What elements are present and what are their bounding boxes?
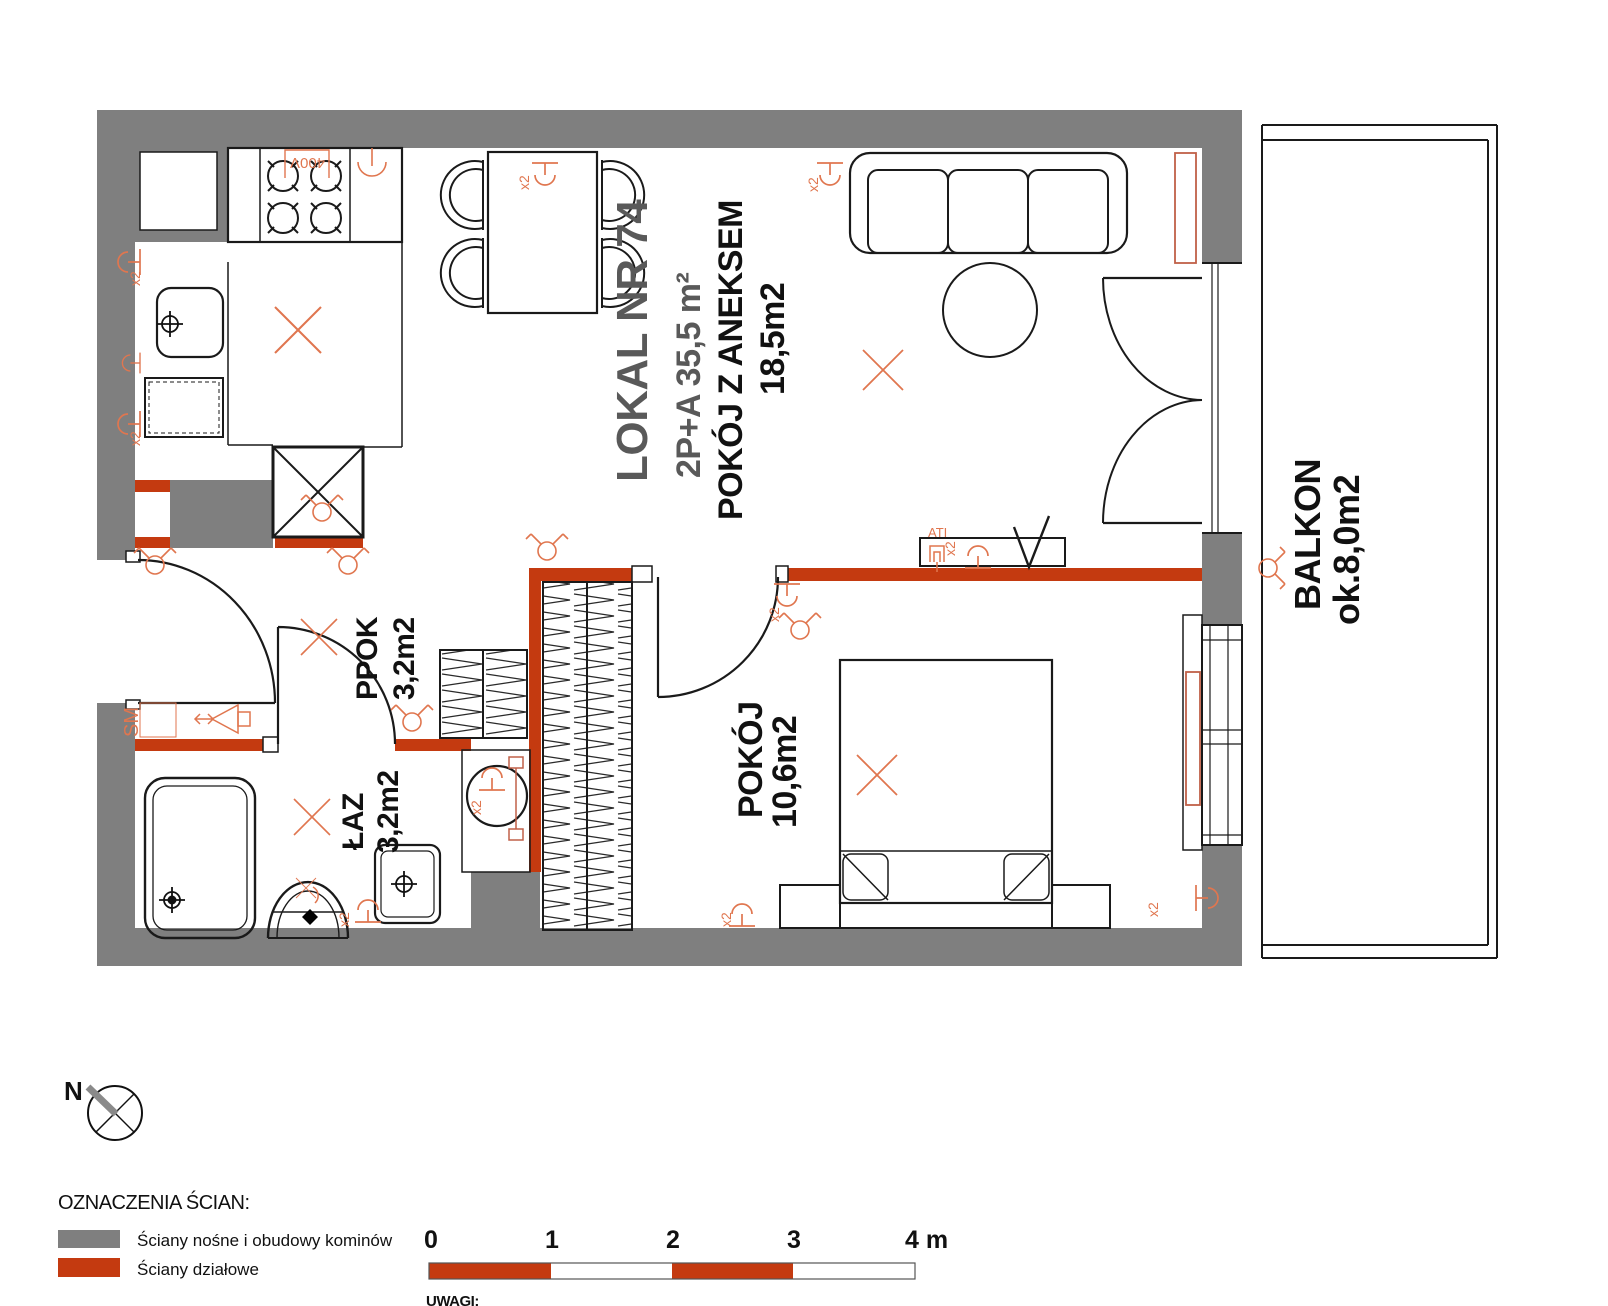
socket-x2-label: x2	[943, 541, 957, 556]
room-label-bath: ŁAZ	[339, 793, 369, 850]
unit-type-area: 2P+A 35,5 m²	[672, 273, 706, 478]
socket-x2-label: x2	[517, 175, 531, 190]
bathtub	[145, 778, 255, 938]
legend-swatch-partition	[58, 1258, 120, 1277]
extractor-symbol	[358, 148, 386, 176]
kitchen-sink	[157, 288, 223, 357]
north-compass	[88, 1086, 142, 1140]
balcony-door	[1103, 263, 1242, 533]
load-bearing-walls	[97, 110, 1242, 966]
intercom-label: SM	[122, 707, 142, 737]
legend-heading: OZNACZENIA ŚCIAN:	[58, 1193, 250, 1213]
legend-swatch-load-bearing	[58, 1230, 120, 1248]
notes-heading: UWAGI:	[426, 1294, 479, 1306]
bedroom-window	[1202, 625, 1242, 845]
dining-table	[488, 152, 597, 313]
coffee-table	[943, 263, 1037, 357]
socket-x2-label: x2	[1146, 902, 1160, 917]
socket-x2-label: x2	[719, 912, 733, 927]
living-radiator	[1175, 153, 1196, 263]
sink-tap-icon	[157, 311, 183, 337]
bedroom-door	[658, 577, 778, 697]
socket-x2-label: x2	[128, 431, 142, 446]
entry-door	[138, 560, 275, 703]
legend-label-load-bearing: Ściany nośne i obudowy kominów	[137, 1231, 392, 1251]
kitchen-zone-line	[228, 148, 402, 447]
stove-power-label: 400V	[290, 155, 325, 170]
scale-tick-2: 2	[666, 1226, 680, 1255]
intercom-icon	[140, 703, 250, 737]
floor-plan-page: LOKAL NR 74 2P+A 35,5 m² POKÓJ Z ANEKSEM…	[0, 0, 1608, 1306]
ventilation-shaft	[273, 447, 363, 537]
bed	[840, 660, 1052, 928]
scale-bar	[429, 1263, 915, 1279]
room-label-hall: PPOK	[353, 617, 383, 700]
floor-plan-drawing	[0, 0, 1608, 1306]
toilet-spray-icon	[313, 887, 318, 903]
north-label: N	[64, 1078, 82, 1104]
scale-tick-1: 1	[545, 1226, 559, 1255]
wall-niche	[140, 152, 217, 230]
basin-tap-icon	[391, 871, 417, 897]
socket-x2-label: x2	[337, 912, 351, 927]
room-label-living: POKÓJ Z ANEKSEM	[714, 200, 748, 520]
nightstands	[780, 885, 1110, 928]
socket-x2-label: x2	[128, 271, 142, 286]
sofa	[850, 153, 1127, 253]
unit-title: LOKAL NR 74	[611, 200, 655, 482]
scale-end-label: 4 m	[905, 1226, 948, 1255]
stove-burners	[268, 161, 341, 233]
socket-x2-label: x2	[806, 177, 820, 192]
room-area-balcony: ok.8,0m2	[1329, 475, 1365, 625]
room-area-living: 18,5m2	[756, 283, 790, 395]
socket-x2-label: x2	[767, 607, 781, 622]
scale-tick-0: 0	[424, 1226, 438, 1255]
tv-socket-label: ATI	[928, 526, 947, 539]
room-label-balcony: BALKON	[1290, 459, 1326, 610]
scale-tick-3: 3	[787, 1226, 801, 1255]
tub-drain-dot	[168, 896, 177, 905]
room-label-bedroom: POKÓJ	[734, 701, 768, 818]
socket-x2-label: x2	[469, 800, 483, 815]
room-area-hall: 3,2m2	[390, 617, 420, 700]
room-area-bath: 3,2m2	[374, 770, 404, 853]
fridge	[145, 378, 223, 437]
legend-label-partition: Ściany działowe	[137, 1260, 259, 1280]
bedroom-radiator	[1186, 672, 1200, 805]
room-area-bedroom: 10,6m2	[768, 716, 802, 828]
